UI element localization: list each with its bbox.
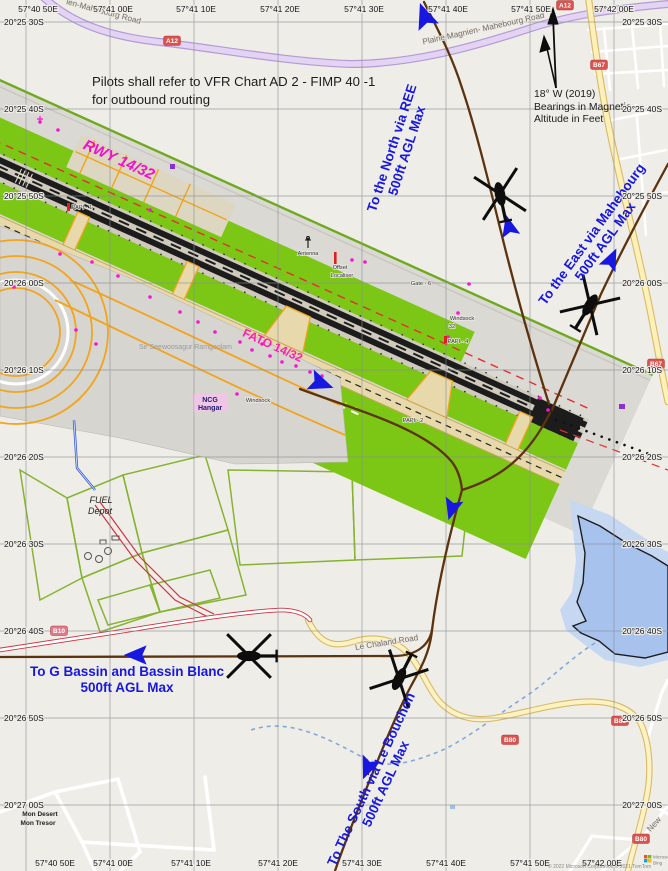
antenna-label: Antenna	[298, 251, 320, 257]
gate6-label: Gate - 6	[411, 281, 431, 287]
offset-localiser-label1: Offset	[333, 265, 348, 271]
grid-label: 20°25 40S	[4, 104, 44, 114]
grid-label: 57°41 00E	[93, 858, 133, 868]
localiser-bar-icon	[334, 252, 337, 264]
grid-label: 20°27 00S	[622, 800, 662, 810]
grid-label: 20°26 50S	[4, 713, 44, 723]
fuel-depot-label2: Depot	[88, 506, 113, 516]
grid-label: 20°25 30S	[622, 17, 662, 27]
grid-label: 57°40 50E	[18, 4, 58, 14]
grid-label: 20°26 50S	[622, 713, 662, 723]
magnetic-altitude: Altitude in Feet	[534, 114, 603, 125]
grid-label: 20°26 40S	[622, 626, 662, 636]
svg-text:B80: B80	[504, 737, 516, 744]
grid-label: 20°26 30S	[4, 539, 44, 549]
road-badge-b67-upper: B67	[591, 60, 608, 70]
grid-label: 20°26 00S	[4, 278, 44, 288]
grid-label: 20°27 00S	[4, 800, 44, 810]
grid-label: 57°41 10E	[171, 858, 211, 868]
svg-text:B10: B10	[53, 628, 65, 635]
ncg-hangar-label: NCG Hangar	[194, 394, 227, 412]
windsock32-label2: 32	[449, 324, 455, 330]
svg-text:500ft AGL Max: 500ft AGL Max	[80, 680, 174, 695]
grid-label: 20°26 30S	[622, 539, 662, 549]
logo-text-line1: Microsoft	[653, 855, 668, 860]
papi4-label: PAPI - 4	[448, 339, 468, 345]
grid-label: 20°26 20S	[622, 452, 662, 462]
grid-label: 57°41 30E	[342, 858, 382, 868]
road-badge-b80-south: B80	[633, 834, 650, 844]
grid-label: 20°25 50S	[4, 191, 44, 201]
grid-label: 57°41 20E	[258, 858, 298, 868]
svg-text:NCG: NCG	[202, 397, 218, 404]
grid-label: 20°26 20S	[4, 452, 44, 462]
grid-label: 57°40 50E	[35, 858, 75, 868]
grid-label: 57°41 20E	[260, 4, 300, 14]
grid-label: 57°41 00E	[93, 4, 133, 14]
road-badge-a12-right: A12	[557, 1, 574, 11]
grid-label: 20°26 40S	[4, 626, 44, 636]
grid-label: 20°26 10S	[4, 365, 44, 375]
offset-localiser-label2: Localiser	[331, 273, 354, 279]
grid-label: 20°26 00S	[622, 278, 662, 288]
logo-text-line2: Bing	[653, 861, 663, 866]
magnetic-bearings: Bearings in Magnetic	[534, 102, 631, 113]
grid-label: 57°42 00E	[594, 4, 634, 14]
svg-text:B67: B67	[593, 62, 605, 69]
grid-label: 20°25 30S	[4, 17, 44, 27]
road-badge-b80-west: B80	[502, 735, 519, 745]
road-badge-b10: B10	[51, 626, 68, 636]
purple-marker-icon	[619, 404, 625, 409]
grid-label: 20°26 10S	[622, 365, 662, 375]
grid-label: 57°41 30E	[344, 4, 384, 14]
fuel-depot-label1: FUEL	[89, 495, 112, 505]
copyright-text: © 2022 Microsoft Corporation © 2021 TomT…	[548, 863, 651, 870]
magnetic-variation: 18° W (2019)	[534, 89, 595, 100]
mon-desert-label1: Mon Desert	[22, 811, 58, 818]
grid-label: 57°41 10E	[176, 4, 216, 14]
windsock-label: Windsock	[246, 398, 270, 404]
papi1-label: PAPI - 1	[72, 205, 92, 211]
svg-text:A12: A12	[559, 3, 571, 10]
grid-label: 20°25 40S	[622, 104, 662, 114]
svg-text:A12: A12	[166, 38, 178, 45]
vfr-chart-map: Pilots shall refer to VFR Chart AD 2 - F…	[0, 0, 668, 871]
airport-name-label: Sir Seewoosagur Ramgoolam	[139, 344, 232, 351]
papi1-bar-icon	[67, 203, 70, 211]
map-canvas: Pilots shall refer to VFR Chart AD 2 - F…	[0, 0, 668, 871]
grid-label: 57°41 40E	[428, 4, 468, 14]
purple-marker-icon	[170, 164, 175, 169]
pond	[450, 805, 455, 809]
windsock32-label1: Windsock	[450, 316, 474, 322]
grid-label: 57°41 50E	[511, 4, 551, 14]
grid-label: 57°41 40E	[426, 858, 466, 868]
notice-line2: for outbound routing	[92, 92, 210, 107]
road-badge-a12: A12	[164, 36, 181, 46]
grid-label: 57°41 50E	[510, 858, 550, 868]
svg-text:B80: B80	[635, 836, 647, 843]
papi4-bar-icon	[444, 336, 447, 343]
mon-desert-label2: Mon Tresor	[20, 820, 56, 827]
notice-line1: Pilots shall refer to VFR Chart AD 2 - F…	[92, 74, 375, 89]
svg-text:Hangar: Hangar	[198, 405, 222, 412]
grid-label: 20°25 50S	[622, 191, 662, 201]
papi2-label: PAPI - 2	[403, 418, 423, 424]
svg-text:To G Bassin and Bassin Blanc: To G Bassin and Bassin Blanc	[30, 664, 225, 679]
